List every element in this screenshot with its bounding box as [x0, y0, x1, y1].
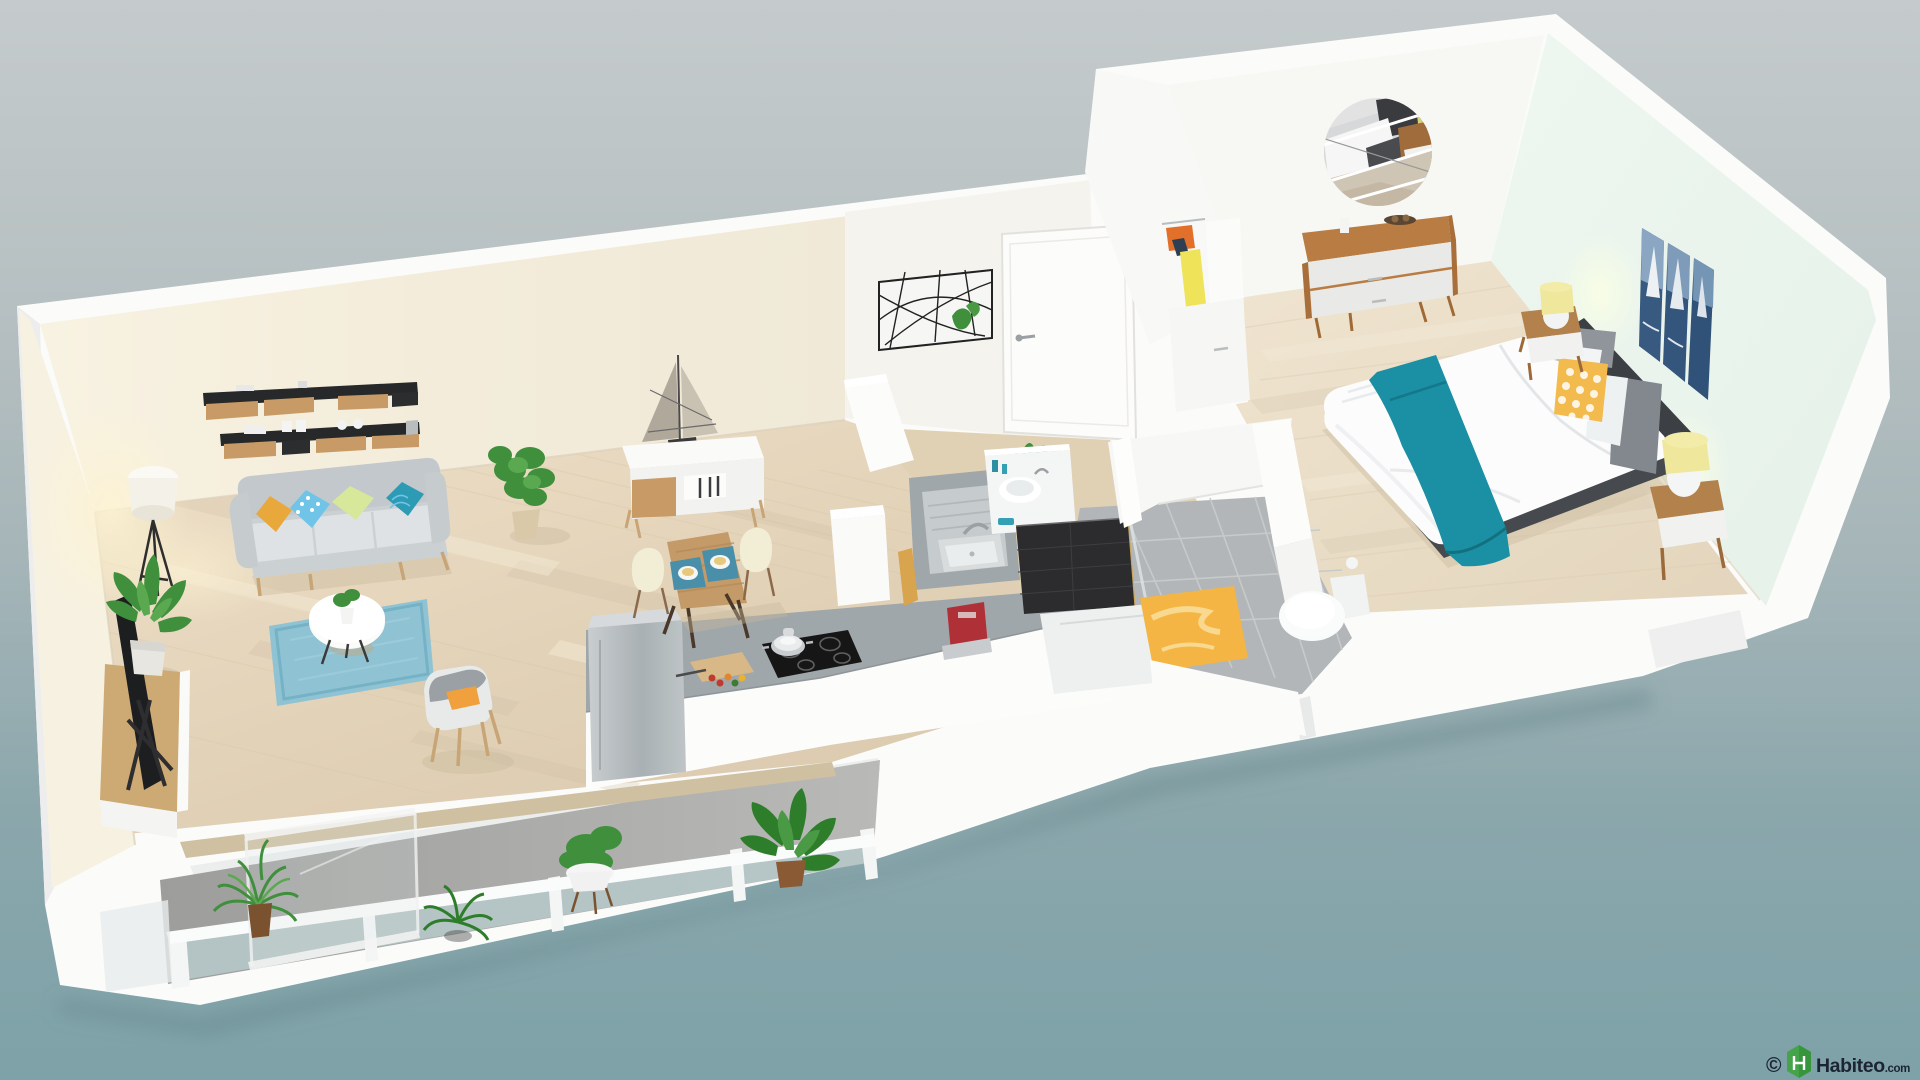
svg-text:©: ©	[1766, 1054, 1782, 1077]
